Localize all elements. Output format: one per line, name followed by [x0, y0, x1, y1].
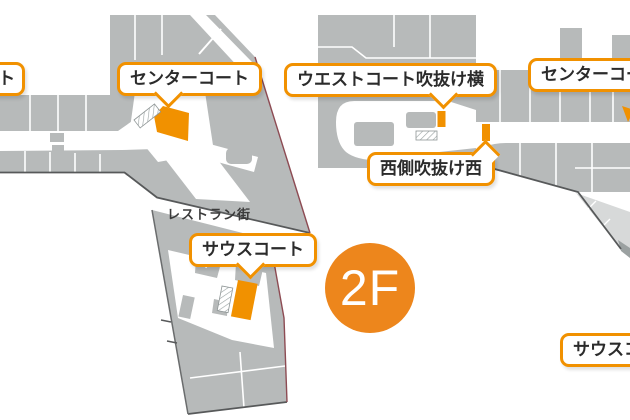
callout-label: センターコート [541, 65, 630, 84]
floor-badge: 2F [325, 243, 415, 333]
callout-north-court[interactable]: ノースコート [0, 62, 25, 96]
callout-label: センターコート [130, 69, 249, 88]
callout-west-side-atrium-west[interactable]: 西側吹抜け西 [367, 152, 495, 186]
callout-label: ノースコート [0, 69, 15, 88]
callout-label: サウスコート [573, 340, 630, 359]
callout-west-court-atrium-side[interactable]: ウエストコート吹抜け横 [284, 63, 497, 97]
callout-south-court-east[interactable]: サウスコート [560, 333, 630, 367]
callout-center-court-east[interactable]: センターコート [528, 58, 630, 92]
callout-center-court-west[interactable]: センターコート [117, 62, 262, 96]
floor-map-page: レストラン街 ノースコート センターコート ウエストコート吹抜け横 西側吹抜け西… [0, 0, 630, 420]
callout-label: ウエストコート吹抜け横 [297, 70, 484, 89]
callout-south-court-west[interactable]: サウスコート [189, 233, 317, 267]
west-side-atrium-highlight [482, 124, 490, 141]
right-building [318, 15, 630, 258]
callout-label: 西側吹抜け西 [380, 159, 482, 178]
west-court-atrium-highlight [438, 111, 446, 127]
callout-label: サウスコート [202, 240, 304, 259]
escalator-icon [416, 131, 437, 140]
restaurant-street-label: レストラン街 [167, 204, 251, 223]
